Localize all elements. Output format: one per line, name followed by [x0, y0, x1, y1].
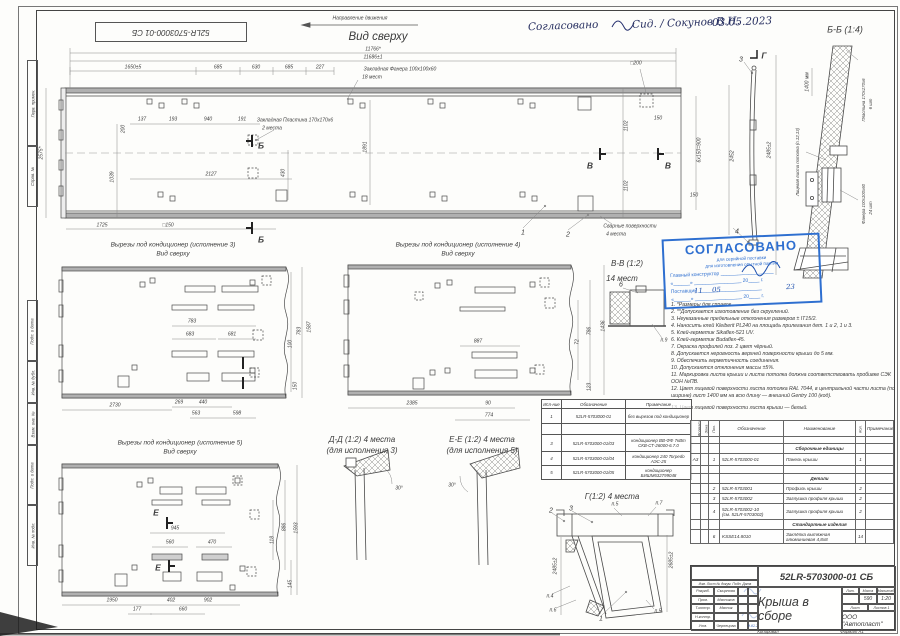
spec-header: Обозначение	[720, 421, 784, 437]
note-line: 7. Окраска профилей поз. 2 цвет чёрный.	[671, 344, 895, 351]
variants-header-row: Исп-ние Обозначение Примечание	[542, 400, 692, 409]
dim-label: 193	[169, 117, 177, 122]
note-line: 12. Цвет лицевой поверхности листа потол…	[671, 386, 895, 400]
dim-label: 191	[238, 117, 246, 122]
dim-label: 685	[285, 65, 293, 70]
dim-label: 1650±5	[125, 65, 142, 70]
stamp-hand-month: 05	[712, 286, 721, 294]
cell: 1	[709, 454, 720, 466]
cell: 52LR-5703000-01/03	[562, 435, 626, 452]
embed-note: Закладная Фанера 100х100х60	[364, 67, 437, 72]
embed-note-qty: 18 мест	[362, 75, 382, 80]
drawing-sheet: 52LR-5703000-01 СБ Направление движения …	[0, 0, 900, 636]
dim-label: 6х150=900	[697, 138, 702, 163]
title-block-code: 52LR-5703000-01 СБ	[757, 566, 896, 588]
cell: 1	[856, 454, 866, 466]
dim-label: 145	[288, 580, 293, 588]
approval-stamp: СОГЛАСОВАНО для серийной поставки для из…	[662, 233, 823, 310]
section-subtitle: (для исполнения 3)	[326, 447, 397, 455]
direction-label: Направление движения	[333, 16, 388, 21]
dim-label: 902	[204, 598, 212, 603]
corner-doc-code: 52LR-5703000-01 СБ	[132, 28, 210, 37]
stamp-hand-day: 11	[694, 287, 703, 295]
embed-note-qty: 2 места	[262, 126, 282, 131]
dim-label: □150	[162, 223, 173, 228]
view-subtitle: Вид сверху	[156, 252, 189, 259]
dim-label: 940	[204, 117, 212, 122]
spec-row: 3 52LR-5703002 Заглушка профиля крыши 2	[691, 494, 894, 504]
note-line: 10. Допускаются отклонения массы ±5%.	[671, 365, 895, 372]
cell: 3	[709, 494, 720, 504]
variants-row: 5 52LR-5703000-01/05 кондиционер БИШМ632…	[542, 466, 692, 480]
cell: 2	[709, 484, 720, 494]
note-ref: п.7	[656, 501, 663, 506]
cell: Профиль крыши	[784, 484, 856, 494]
weld-note: Сварные поверхности	[603, 224, 656, 229]
embed-note-qty: 24 шт	[869, 201, 874, 214]
spec-row	[691, 437, 894, 444]
note-line: 4. Наносить клей Kleiberit PL240 на площ…	[671, 323, 895, 330]
note-line: 5. Клей-герметик Sikaflex-521 UV.	[671, 330, 895, 337]
callout-1: 1	[521, 229, 525, 236]
dim-label: 2452	[730, 150, 735, 161]
note-line: 9. Обеспечить герметичность соединения.	[671, 358, 895, 365]
dim-label: 886	[282, 523, 287, 531]
dim-label: 90	[485, 401, 491, 406]
dim-label: 2730	[109, 403, 120, 408]
dim-label: 440	[199, 400, 207, 405]
spec-table: Формат Зона Поз. Обозначение Наименовани…	[690, 420, 894, 544]
dim-label: 563	[192, 411, 200, 416]
cell	[626, 424, 692, 435]
dim-label: 786	[587, 327, 592, 335]
dim-label: 100	[288, 340, 293, 348]
variants-row	[542, 424, 692, 435]
spec-header: Примечание	[866, 421, 894, 437]
view-title-cutout4: Вырезы под кондиционер (исполнение 4)	[396, 243, 521, 250]
variants-header: Обозначение	[562, 400, 626, 409]
cell: 52LR-5703002	[720, 494, 784, 504]
dim-label: 2385	[406, 401, 417, 406]
dim-label: 470	[208, 540, 216, 545]
dim-label: 1891	[363, 141, 368, 152]
cell: кондиционер 240 Torpedo АЭС-25	[626, 452, 692, 466]
section-letter-g: Г	[761, 52, 766, 61]
dim-label: 200	[121, 125, 126, 133]
spec-header: Кол.	[856, 421, 866, 437]
dim-label: 123	[587, 383, 592, 391]
angle-label: 30°	[395, 486, 403, 491]
dim-label: 783	[297, 327, 302, 335]
cell: 1	[542, 409, 562, 424]
dim-label: 1400 мм	[805, 72, 810, 91]
cell: кондиционер ВВ-ФФ 7кВт СКВ-СТ-26000-6.7.…	[626, 435, 692, 452]
title-block-change-grid	[691, 566, 759, 581]
cell: 6	[709, 530, 720, 544]
note-line: 3. Неуказанные предельные отклонения раз…	[671, 316, 895, 323]
angle-label: 30°	[448, 483, 456, 488]
dim-label: 598	[233, 411, 241, 416]
view-title-cutout5: Вырезы под кондиционер (исполнение 5)	[118, 441, 243, 448]
dim-label: 2485±2	[553, 558, 558, 575]
dim-label: 11686±1	[363, 55, 382, 60]
role-name: Чернецова	[713, 620, 739, 631]
dim-label: 683	[186, 332, 194, 337]
dim-label: 1593	[294, 522, 299, 533]
callout-3: 3	[569, 505, 573, 512]
spec-header-row: Формат Зона Поз. Обозначение Наименовани…	[691, 421, 894, 437]
spec-section-title: Стандартные изделия	[784, 520, 856, 530]
dim-label: 72	[575, 339, 580, 345]
spec-header: Поз.	[709, 421, 720, 437]
dim-label: 11766*	[365, 47, 380, 52]
side-box-vzam-inv: Взам. инв. №	[27, 402, 38, 446]
dim-label: 430	[281, 169, 286, 177]
cell	[542, 424, 562, 435]
dim-label: 2575*	[39, 146, 44, 159]
section-title-dd: Д-Д (1:2) 4 места	[329, 436, 395, 444]
weld-note-qty: 4 места	[606, 232, 626, 237]
note-line: 11. Маркировка листа крыши и листа потол…	[671, 372, 895, 386]
dim-label: 1587	[307, 321, 312, 332]
dim-label: 118	[270, 536, 275, 544]
view-title-cutout3: Вырезы под кондиционер (исполнение 3)	[111, 243, 236, 250]
dim-label: 783	[188, 319, 196, 324]
cell: 52LR-5703001	[720, 484, 784, 494]
spec-header: Зона	[701, 421, 709, 437]
callout-4: 4	[735, 228, 739, 235]
section-title-g: Г(1:2) 4 места	[585, 493, 640, 501]
spec-row: 4 52LR-5703002-10(см. 52LR-5703002) Загл…	[691, 504, 894, 520]
embed-note: Закладная Пластина 170х170х6	[257, 118, 333, 123]
dim-label: 1436	[601, 320, 606, 331]
dim-label: 1950	[106, 598, 117, 603]
handwritten-approval: Согласовано	[528, 19, 599, 33]
side-box-podp-data: Подп. и дата	[27, 300, 38, 362]
dim-label: 774	[485, 413, 493, 418]
dim-label: 1039	[110, 171, 115, 182]
variants-header: Исп-ние	[542, 400, 562, 409]
variants-row: 1 52LR-5703000-01 без вырезов под кондиц…	[542, 409, 692, 424]
spec-section-title: Сборочные единицы	[784, 444, 856, 454]
cell: 14	[856, 530, 866, 544]
spec-section-row: Сборочные единицы	[691, 444, 894, 454]
note-ref: п.5	[655, 609, 662, 614]
callout-2: 2	[549, 507, 553, 514]
note-line: 6. Клей-герметик Budaflex-45.	[671, 337, 895, 344]
section-letter-b: Б	[258, 236, 264, 245]
dim-label: 150	[690, 193, 698, 198]
view-title-top: Вид сверху	[348, 31, 407, 43]
spec-section-row: Детали	[691, 474, 894, 484]
side-box-podp-data2: Подп. и дата	[27, 444, 38, 506]
note-ref: п.5	[612, 502, 619, 507]
variants-header: Примечание	[626, 400, 692, 409]
copied-label: Копировал	[757, 630, 778, 635]
dim-label: 177	[133, 607, 141, 612]
cell	[562, 424, 626, 435]
dim-label: □200	[630, 61, 641, 66]
cell: 52LR-5703000-01/04	[562, 452, 626, 466]
callout-3: 3	[739, 57, 743, 64]
embed-note: Лицевая листа потолка (п.12,13)	[796, 128, 801, 196]
note-ref: п.6	[550, 608, 557, 613]
variants-table: Исп-ние Обозначение Примечание 1 52LR-57…	[541, 399, 692, 480]
side-box-perv-primen: Перв. примен.	[27, 60, 38, 147]
cell: 2	[856, 504, 866, 520]
dim-label: 402	[167, 598, 175, 603]
note-line: 8. Допускается неровность верхней поверх…	[671, 351, 895, 358]
note-line: 2. **Допускается изготовление без скругл…	[671, 309, 895, 316]
variants-row: 4 52LR-5703000-01/04 кондиционер 240 Tor…	[542, 452, 692, 466]
spec-header: Формат	[691, 421, 701, 437]
cell: 4	[542, 452, 562, 466]
view-subtitle: Вид сверху	[441, 252, 474, 259]
side-box-inv-dubl: Инв. № дубл.	[27, 360, 38, 404]
section-letter-b: Б	[258, 142, 264, 151]
dim-label: 2685±2	[669, 552, 674, 569]
cell: 4	[709, 504, 720, 520]
cell: без вырезов под кондиционер	[626, 409, 692, 424]
dim-label: 2485±2	[767, 142, 772, 159]
dim-label: 887	[474, 339, 482, 344]
spec-header: Наименование	[784, 421, 856, 437]
section-title-ee: Е-Е (1:2) 4 места	[449, 436, 515, 444]
spec-row	[691, 466, 894, 474]
section-subtitle: (для исполнения 5)	[446, 447, 517, 455]
note-ref: п.4	[547, 594, 554, 599]
cell: Заглушка профиля крыши	[784, 504, 856, 520]
dim-label: 150	[654, 116, 662, 121]
cell: 5	[542, 466, 562, 480]
dim-label: 945	[171, 526, 179, 531]
stamp-hand-year: 23	[786, 283, 795, 291]
callout-2: 2	[566, 231, 570, 238]
dim-label: 227	[316, 65, 324, 70]
spec-row: 6 KSSE14.8010 Заклёпка вытяжная алюминие…	[691, 530, 894, 544]
section-letter-e: Е	[153, 509, 159, 518]
note-ref: п.9	[661, 338, 668, 343]
callout-1: 1	[599, 615, 603, 622]
cell: А3	[691, 454, 701, 466]
cell: 52LR-5703000-01	[720, 454, 784, 466]
dim-label: 630	[252, 65, 260, 70]
section-title-bb: Б-Б (1:4)	[827, 25, 863, 34]
section-title-vv: В-В (1:2)	[611, 260, 643, 268]
dim-label: 150	[293, 382, 298, 390]
spec-row: А3 1 52LR-5703000-01 Панель крыши 1	[691, 454, 894, 466]
note-line: 13. Цвет лицевой поверхности листа крыши…	[671, 405, 895, 412]
title-block-name: Крыша в сборе	[757, 586, 843, 631]
embed-note-qty: 6 шт	[869, 99, 874, 110]
corner-doc-code-box: 52LR-5703000-01 СБ	[95, 22, 247, 42]
cell: 52LR-5703002-10(см. 52LR-5703002)	[720, 504, 784, 520]
cell: KSSE14.8010	[720, 530, 784, 544]
cell: 52LR-5703000-01	[562, 409, 626, 424]
spec-section-row: Стандартные изделия	[691, 520, 894, 530]
section-letter-v: В	[587, 162, 593, 171]
cell: 2	[856, 494, 866, 504]
dim-label: 560	[166, 540, 174, 545]
dim-label: 1725	[96, 223, 107, 228]
cell: Заглушка профиля крыши	[784, 494, 856, 504]
dim-label: 685	[214, 65, 222, 70]
dim-label: 660	[179, 607, 187, 612]
cell: 3	[542, 435, 562, 452]
dim-label: 137	[138, 117, 146, 122]
title-block: 52LR-5703000-01 СБ Изм. Лист № докум. По…	[690, 565, 895, 630]
cell: 2	[856, 484, 866, 494]
cell: кондиционер БИШМ632799048	[626, 466, 692, 480]
embed-note: Фанера 100х100х60	[862, 184, 867, 224]
section-letter-v: В	[665, 162, 671, 171]
cell: Заклёпка вытяжная алюминиевая 4,8х8	[784, 530, 856, 544]
view-subtitle: Вид сверху	[163, 450, 196, 457]
dim-label: 2127	[205, 172, 216, 177]
section-letter-e: Е	[155, 564, 161, 573]
dim-label: 269	[175, 400, 183, 405]
spec-row: 2 52LR-5703001 Профиль крыши 2	[691, 484, 894, 494]
callout-6: 6	[619, 281, 623, 288]
handwritten-date: 03.05.2023	[712, 15, 773, 29]
spec-section-title: Детали	[784, 474, 856, 484]
side-box-inv-podl: Инв. № подл.	[27, 504, 38, 566]
cell: 52LR-5703000-01/05	[562, 466, 626, 480]
format-label: Формат А1	[840, 630, 864, 635]
role-label: Утв.	[691, 620, 715, 631]
embed-note: Пластина 170х170х6	[862, 78, 867, 121]
dim-label: 1102	[624, 181, 629, 192]
dim-label: 681	[228, 332, 236, 337]
cell: Панель крыши	[784, 454, 856, 466]
side-box-sprav-no: Справ. №	[27, 145, 38, 207]
variants-row: 3 52LR-5703000-01/03 кондиционер ВВ-ФФ 7…	[542, 435, 692, 452]
dim-label: 1102	[624, 121, 629, 132]
